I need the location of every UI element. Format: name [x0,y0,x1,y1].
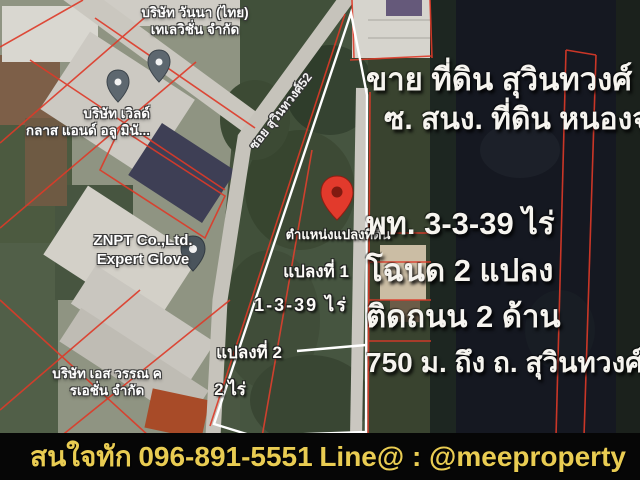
property-ad-image: ซอย สุวินทวงศ์52 บริษัท วันนา (ไทย) เทเล… [0,0,640,480]
listing-detail-distance: 750 ม. ถึง ถ. สุวินทวงศ์ [366,341,640,386]
plot1-label: แปลงที่ 1 [283,258,349,285]
plot2-area-label: 2 ไร่ [214,376,246,403]
contact-phone: 096-891-5551 [138,441,312,473]
poi-label-wanna-thai-television: บริษัท วันนา (ไทย) เทเลวิชั่น จำกัด [141,5,248,39]
plot2-label: แปลงที่ 2 [216,339,282,366]
poi-label-s-wan-creation: บริษัท เอส วรรณ ค รเอชั่น จำกัด [52,366,161,400]
contact-line-id: Line@ : @meeproperty [319,441,626,473]
listing-detail-deeds: โฉนด 2 แปลง [366,248,640,295]
listing-detail-roads: ติดถนน 2 ด้าน [366,294,640,341]
contact-banner: สนใจทัก 096-891-5551 Line@ : @meepropert… [0,433,640,480]
contact-prefix: สนใจทัก [30,435,132,479]
listing-title: ขาย ที่ดิน สุวินทวงศ์ 52 [366,60,640,100]
plot1-area-label: 1-3-39 ไร่ [254,290,348,319]
listing-detail-area: พท. 3-3-39 ไร่ [366,201,640,248]
poi-label-znpt-expert-glove: ZNPT Co.,Ltd. Expert Glove [93,232,192,270]
listing-text-block: ขาย ที่ดิน สุวินทวงศ์ 52 ซ. สนง. ที่ดิน … [366,60,640,386]
poi-label-world-glass-alu: บริษัท เวิลด์ กลาส แอนด์ อลู มินั... [0,106,150,140]
listing-subtitle: ซ. สนง. ที่ดิน หนองจอก [366,100,640,139]
listing-details: พท. 3-3-39 ไร่ โฉนด 2 แปลง ติดถนน 2 ด้าน… [366,201,640,385]
